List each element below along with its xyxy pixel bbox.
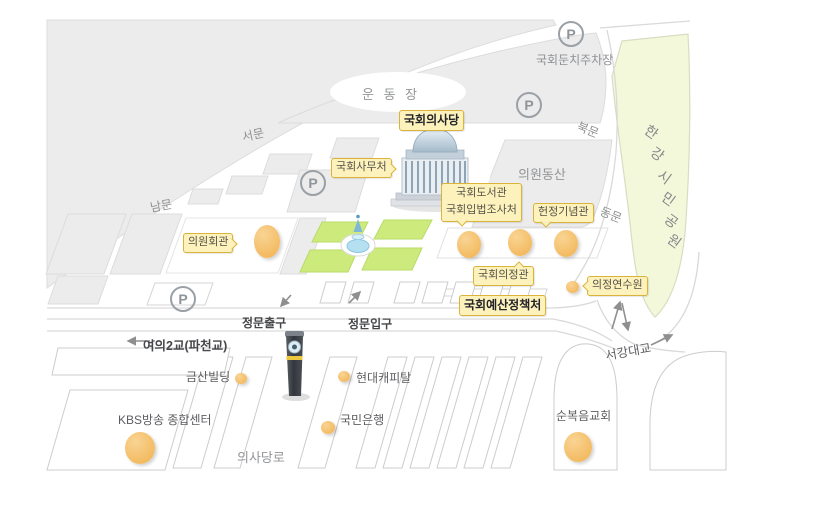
marker-uijeong-hall: [508, 229, 532, 256]
marker-training-institute: [566, 281, 579, 293]
area-members-hill: 의원동산: [518, 164, 566, 183]
seogang-arrow: [651, 335, 672, 345]
parking-icon-riverside: P: [558, 21, 584, 47]
road-uisadang: 의사당로: [237, 447, 285, 466]
bridge-arrow-down: [622, 303, 628, 330]
label-secretariat[interactable]: 국회사무처: [331, 158, 392, 178]
marker-library: [457, 231, 481, 258]
label-assembly-hall[interactable]: 국회의사당: [399, 110, 464, 131]
label-budget-office[interactable]: 국회예산정책처: [459, 295, 546, 316]
road-main-gate-entrance: 정문입구: [348, 315, 392, 332]
label-memorial-hall[interactable]: 헌정기념관: [533, 203, 594, 223]
marker-kbs: [125, 432, 155, 464]
place-kbs-center: KBS방송 종합센터: [118, 411, 212, 428]
place-hyundai-capital: 현대캐피탈: [356, 369, 411, 386]
marker-members-hall: [254, 225, 280, 258]
label-uijeong-hall[interactable]: 국회의정관: [473, 266, 534, 286]
place-geumsan-building: 금산빌딩: [186, 368, 230, 385]
label-members-hall[interactable]: 의원회관: [183, 233, 233, 253]
area-sports-field: 운 동 장: [362, 84, 420, 103]
parking-icon-west: P: [300, 170, 326, 196]
area-riverside-parking: 국회둔치주차장: [536, 51, 613, 68]
marker-church: [564, 432, 592, 462]
exit-arrow: [281, 295, 291, 306]
kbs-block: [47, 390, 188, 470]
label-secretariat-text: 국회사무처: [336, 161, 387, 173]
road-yeoui-bridge: 여의2교(파천교): [143, 335, 227, 354]
marker-hyundai: [338, 371, 350, 382]
label-uijeong-hall-text: 국회의정관: [478, 269, 529, 281]
label-memorial-hall-text: 헌정기념관: [538, 206, 589, 218]
han-river-park-strip: [612, 34, 690, 317]
place-kookmin-bank: 국민은행: [340, 411, 384, 428]
marker-kookmin: [321, 421, 335, 434]
gate-monument: [282, 331, 310, 401]
parking-icon-south: P: [170, 286, 196, 312]
label-members-hall-text: 의원회관: [188, 236, 228, 248]
label-training-institute-text: 의정연수원: [592, 279, 643, 291]
label-library-line1: 국회도서관: [446, 185, 517, 202]
road-main-gate-exit: 정문출구: [242, 314, 286, 331]
place-full-gospel-church: 순복음교회: [556, 407, 611, 424]
label-library[interactable]: 국회도서관 국회입법조사처: [441, 183, 522, 222]
parking-icon-north: P: [516, 92, 542, 118]
label-training-institute[interactable]: 의정연수원: [587, 276, 648, 296]
bridge-arrow-up: [612, 302, 620, 329]
assembly-area-map: P P P P 국회의사당 국회사무처 의원회관 국회도서관 국회입법조사처 헌…: [0, 0, 840, 525]
marker-geumsan: [235, 373, 247, 384]
marker-memorial-hall: [554, 230, 578, 257]
label-library-line2: 국회입법조사처: [446, 202, 517, 219]
